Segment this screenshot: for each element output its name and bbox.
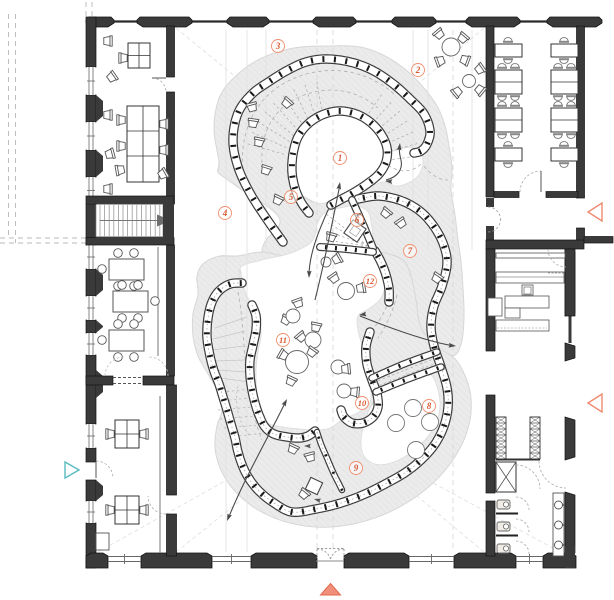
svg-text:10: 10 (358, 398, 367, 408)
svg-text:2: 2 (415, 65, 421, 75)
svg-text:8: 8 (427, 401, 432, 411)
svg-text:3: 3 (275, 41, 281, 51)
svg-text:5: 5 (289, 192, 294, 202)
svg-text:12: 12 (366, 276, 375, 286)
svg-text:4: 4 (222, 208, 228, 218)
svg-text:11: 11 (279, 335, 287, 345)
svg-text:7: 7 (408, 246, 413, 256)
svg-text:6: 6 (355, 215, 360, 225)
svg-text:9: 9 (354, 463, 359, 473)
svg-text:1: 1 (338, 153, 343, 163)
